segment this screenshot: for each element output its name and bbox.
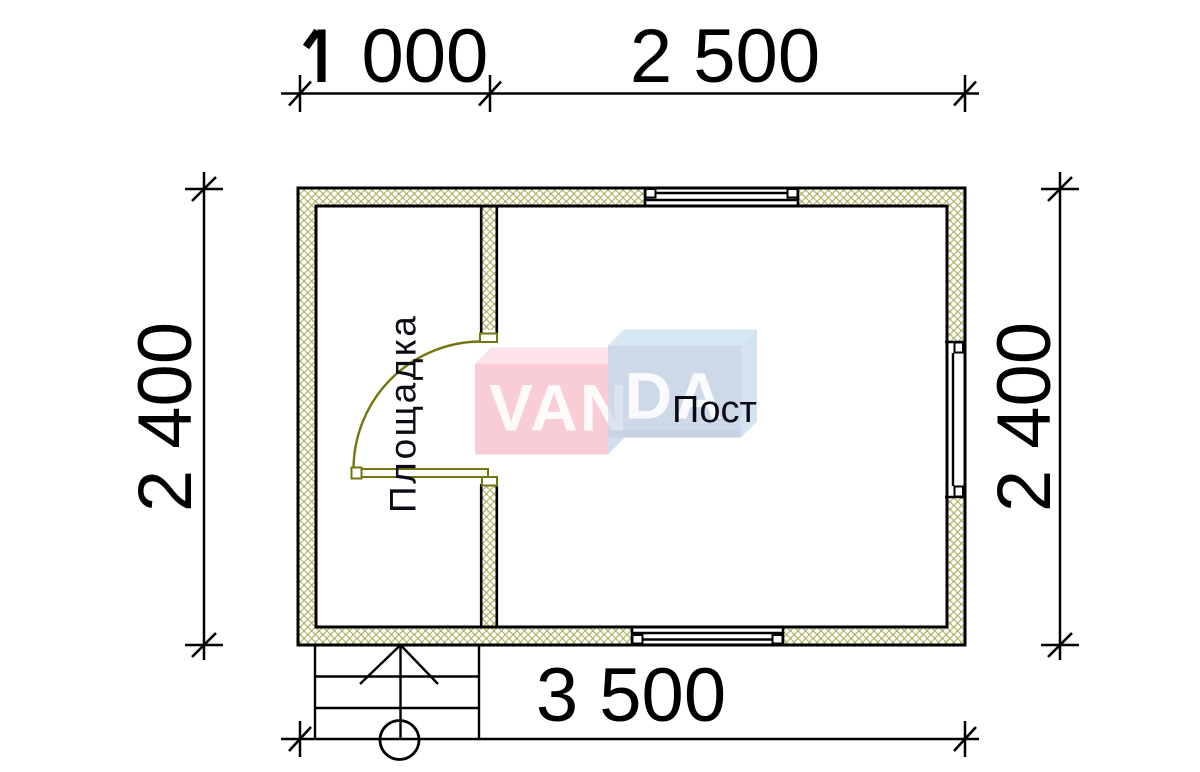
svg-text:2 400: 2 400 — [982, 322, 1067, 512]
svg-text:Площадка: Площадка — [383, 314, 424, 513]
svg-text:3 500: 3 500 — [536, 653, 726, 738]
svg-text:2 500: 2 500 — [630, 14, 820, 99]
svg-text:2 400: 2 400 — [123, 322, 208, 512]
svg-text:000: 000 — [362, 14, 489, 99]
svg-text:Пост: Пост — [672, 389, 757, 431]
